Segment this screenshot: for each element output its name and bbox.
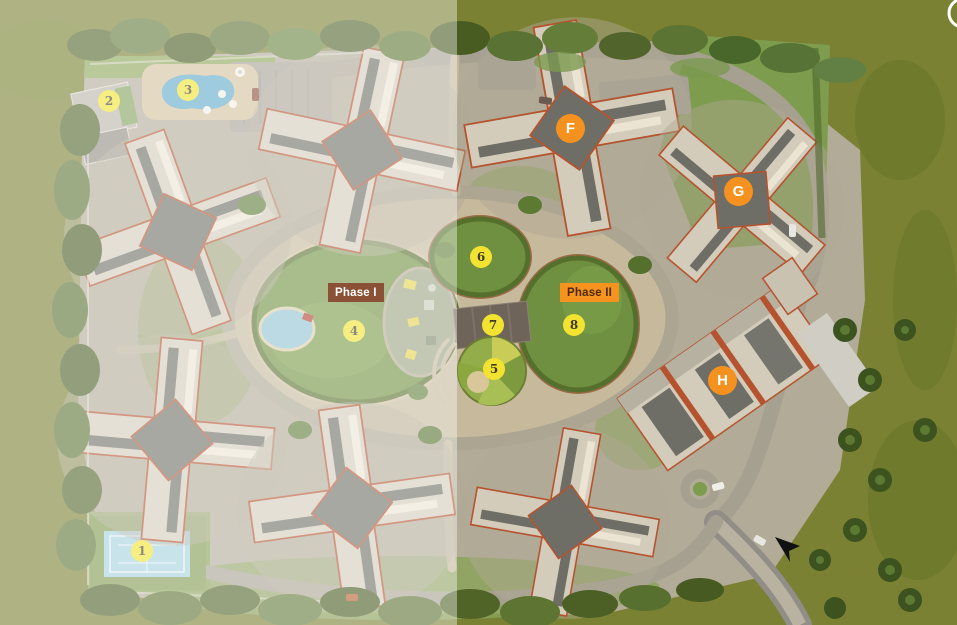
amenity-marker-4-label: 4 — [350, 325, 358, 337]
amenity-marker-3[interactable]: 3 — [177, 79, 199, 101]
building-marker-f[interactable]: F — [556, 114, 585, 143]
master-plan-image: 1 2 3 4 Phase I Phase II 5 6 7 8 — [0, 0, 957, 625]
amenity-marker-2[interactable]: 2 — [98, 90, 120, 112]
building-marker-g-label: G — [733, 184, 745, 199]
amenity-marker-1-label: 1 — [138, 545, 146, 557]
amenity-marker-6-label: 6 — [477, 251, 485, 263]
amenity-marker-8-label: 8 — [570, 319, 578, 331]
building-marker-h-label: H — [717, 373, 728, 388]
amenity-marker-4[interactable]: 4 — [343, 320, 365, 342]
amenity-marker-8[interactable]: 8 — [563, 314, 585, 336]
amenity-marker-5-label: 5 — [490, 363, 498, 375]
amenity-marker-1[interactable]: 1 — [131, 540, 153, 562]
building-marker-g[interactable]: G — [724, 177, 753, 206]
pond — [260, 308, 314, 350]
pool-area — [142, 64, 258, 120]
amenity-marker-7-label: 7 — [489, 319, 497, 331]
amenity-marker-7[interactable]: 7 — [482, 314, 504, 336]
amenity-marker-6[interactable]: 6 — [470, 246, 492, 268]
amenity-marker-5[interactable]: 5 — [483, 358, 505, 380]
amenity-marker-2-label: 2 — [105, 95, 113, 107]
building-marker-h[interactable]: H — [708, 366, 737, 395]
amenity-marker-3-label: 3 — [184, 84, 192, 96]
site-render — [0, 0, 957, 625]
building-marker-f-label: F — [566, 121, 575, 136]
